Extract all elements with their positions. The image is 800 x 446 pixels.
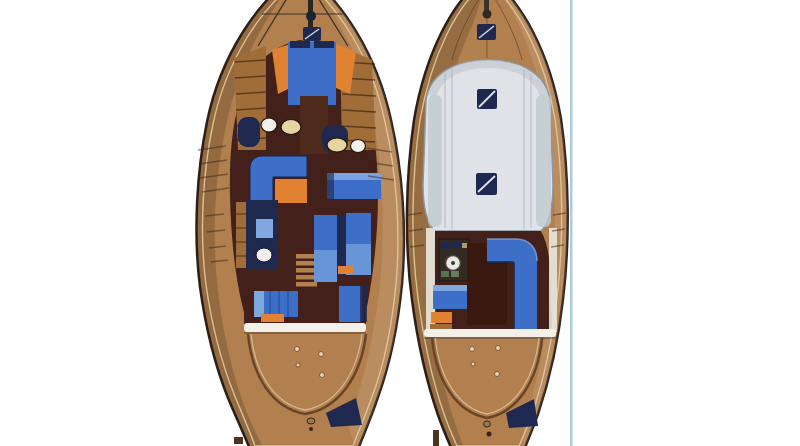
stern-fitting [487, 432, 492, 437]
aft-cabin-pillow [254, 291, 264, 317]
wheelhouse-rim-starboard [549, 228, 557, 332]
coachroof-side-port [428, 95, 442, 227]
helm-instrument-2 [452, 241, 461, 247]
aft-beam [424, 329, 556, 337]
head-toilet [256, 248, 272, 262]
port-orange-locker [431, 312, 452, 323]
v-berth-bed [288, 42, 336, 105]
helm-switch-1 [441, 271, 449, 277]
v-berth-pillow-starboard [314, 41, 334, 48]
salon-table [275, 179, 307, 203]
coachroof-side-starboard [536, 95, 551, 227]
berth-orange-locker [338, 266, 353, 274]
stern-fitting [309, 427, 313, 431]
main-deck-plan [407, 0, 568, 446]
brochure-scan [0, 0, 800, 446]
transom-beam [244, 323, 366, 332]
aft-head-shower [256, 219, 273, 238]
washbasin-cream-starboard [327, 138, 347, 152]
windlass-drum [306, 11, 316, 21]
stern-cleat [307, 418, 315, 424]
v-berth-pillow-port [290, 41, 310, 48]
vanity-port [238, 117, 260, 147]
page-divider-line [570, 0, 573, 446]
helm-switch-2 [451, 271, 459, 277]
washbasin-white-starboard [351, 140, 366, 153]
port-bench-backrest [433, 285, 467, 291]
washbasin-cream-port [281, 120, 301, 135]
aft-wardrobe-side [360, 286, 367, 322]
washbasin-white-port [261, 118, 277, 132]
lower-deck-plan [196, 0, 403, 446]
platform-corner-mark [234, 437, 243, 444]
starboard-sofa-armrest [327, 173, 334, 199]
coachroof [423, 60, 553, 231]
stern-cleat [484, 421, 491, 427]
aft-wardrobe [339, 286, 362, 322]
guest-berth-inner-blanket [314, 250, 337, 282]
aft-cabin-orange-step [261, 314, 284, 322]
helm-instrument-1 [441, 242, 450, 249]
aft-cabinet-strip [236, 202, 246, 268]
helm-instrument-3 [462, 243, 467, 248]
platform-corner-mark [433, 430, 439, 446]
anchor-windlass [483, 10, 492, 19]
deck-plans-figure [0, 0, 800, 446]
steering-wheel-hub [451, 261, 455, 265]
